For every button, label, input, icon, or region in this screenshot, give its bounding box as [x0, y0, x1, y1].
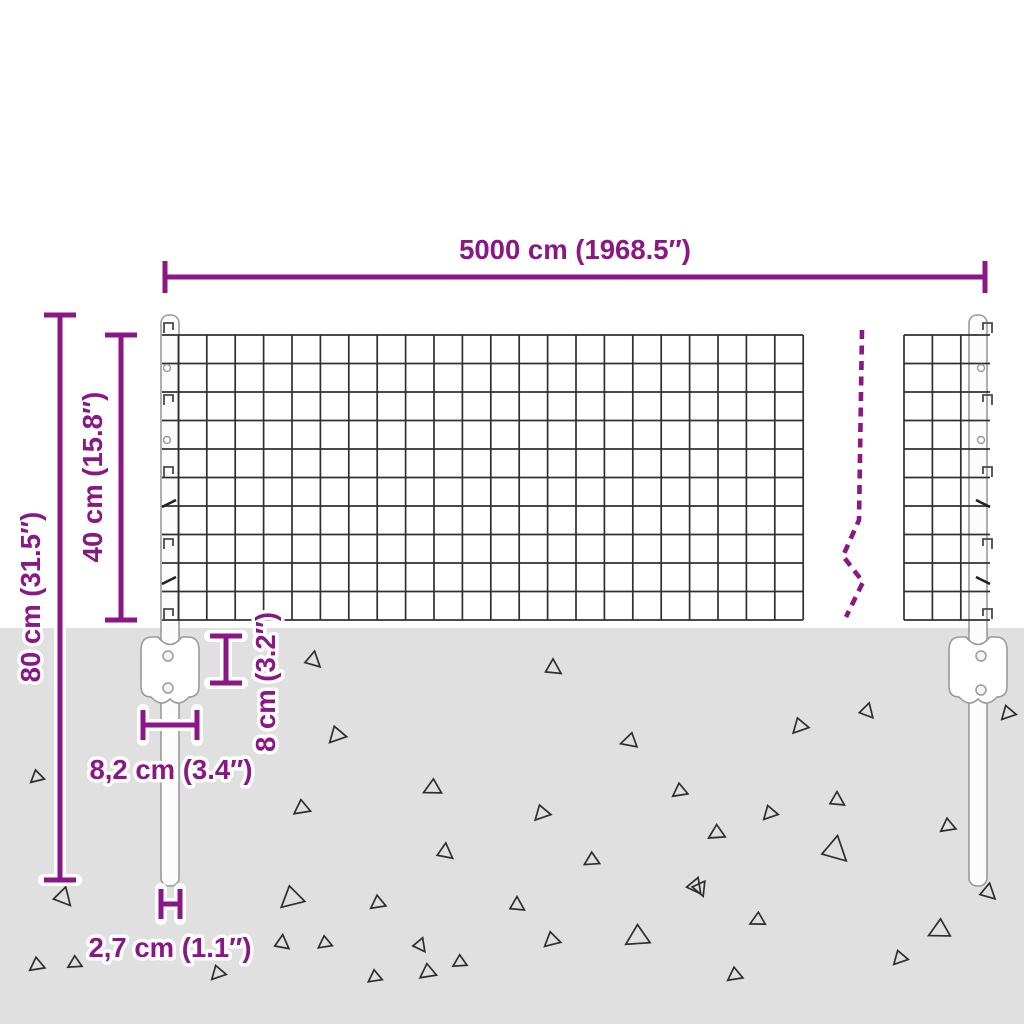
right-plate-hole-top: [976, 651, 986, 661]
post-clip-eyelet: [164, 365, 171, 372]
label-post-diameter: 2,7 cm (1.1″): [89, 932, 252, 963]
break-dashed-line: [843, 330, 863, 617]
dimension-mesh-height: 40 cm (15.8″): [77, 335, 137, 620]
post-clip-eyelet: [978, 365, 985, 372]
right-post: [969, 315, 987, 886]
post-clip-eyelet: [164, 437, 171, 444]
label-total-width: 5000 cm (1968.5″): [459, 234, 691, 265]
label-anchor-depth: 8 cm (3.2″): [250, 612, 281, 752]
left-plate-hole-top: [163, 651, 173, 661]
label-post-height: 80 cm (31.5″): [15, 512, 46, 683]
right-plate-hole-bottom: [976, 685, 986, 695]
fence-dimension-diagram: 5000 cm (1968.5″) 80 cm (31.5″) 40 cm (1…: [0, 0, 1024, 1024]
post-clips: [162, 323, 992, 619]
label-mesh-height: 40 cm (15.8″): [77, 392, 108, 563]
diagram-canvas: 5000 cm (1968.5″) 80 cm (31.5″) 40 cm (1…: [0, 0, 1024, 1024]
label-anchor-width: 8,2 cm (3.4″): [90, 754, 253, 785]
dimension-total-width: 5000 cm (1968.5″): [165, 234, 985, 293]
wire-mesh-panel-left: [162, 335, 803, 620]
left-plate-hole-bottom: [163, 683, 173, 693]
post-clip-eyelet: [978, 437, 985, 444]
